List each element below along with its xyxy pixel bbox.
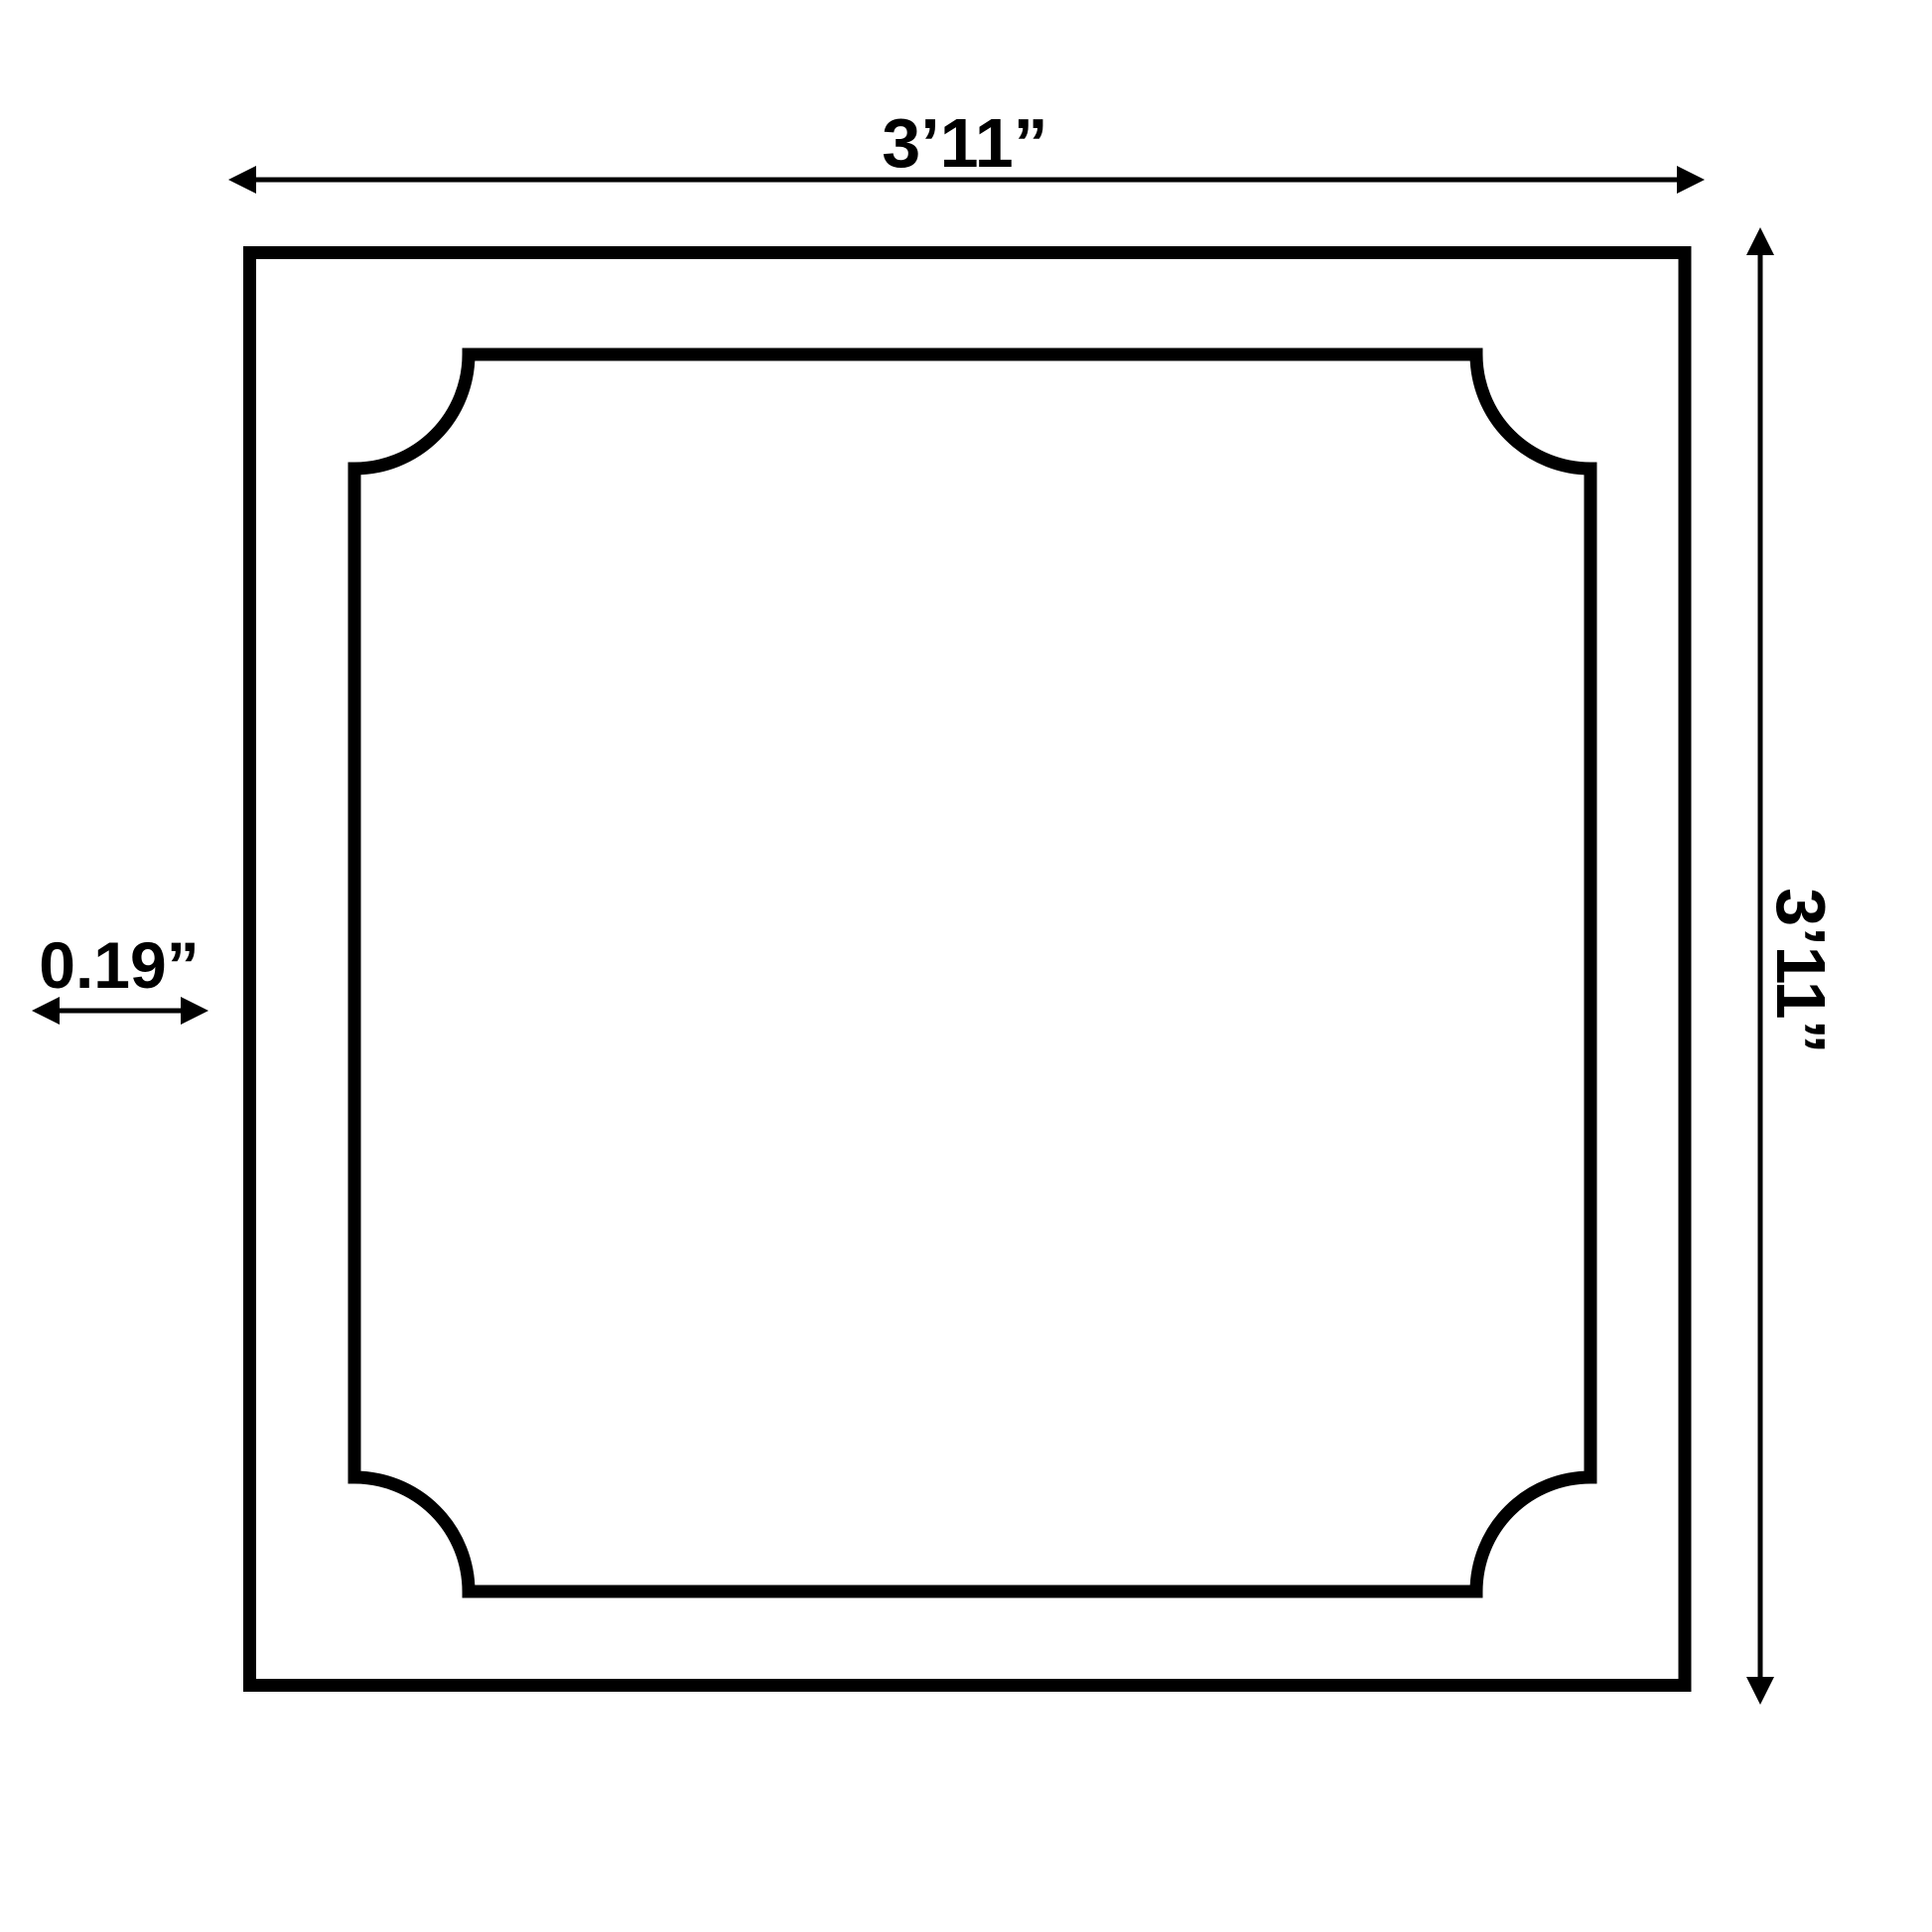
thickness-dimension-label: 0.19” — [39, 928, 199, 1002]
height-dimension: 3’11” — [1746, 227, 1840, 1705]
width-dimension: 3’11” — [228, 104, 1705, 194]
inner-panel-outline — [354, 354, 1590, 1591]
dimension-diagram: 3’11” 3’11” 0.19” — [0, 0, 1932, 1932]
height-arrowhead-top-icon — [1746, 227, 1774, 255]
width-arrowhead-left-icon — [228, 166, 256, 194]
thickness-dimension: 0.19” — [32, 928, 208, 1025]
width-arrowhead-right-icon — [1677, 166, 1705, 194]
height-dimension-label: 3’11” — [1762, 888, 1840, 1053]
width-dimension-label: 3’11” — [882, 104, 1047, 182]
height-arrowhead-bottom-icon — [1746, 1677, 1774, 1705]
outer-frame-outline — [250, 253, 1686, 1686]
